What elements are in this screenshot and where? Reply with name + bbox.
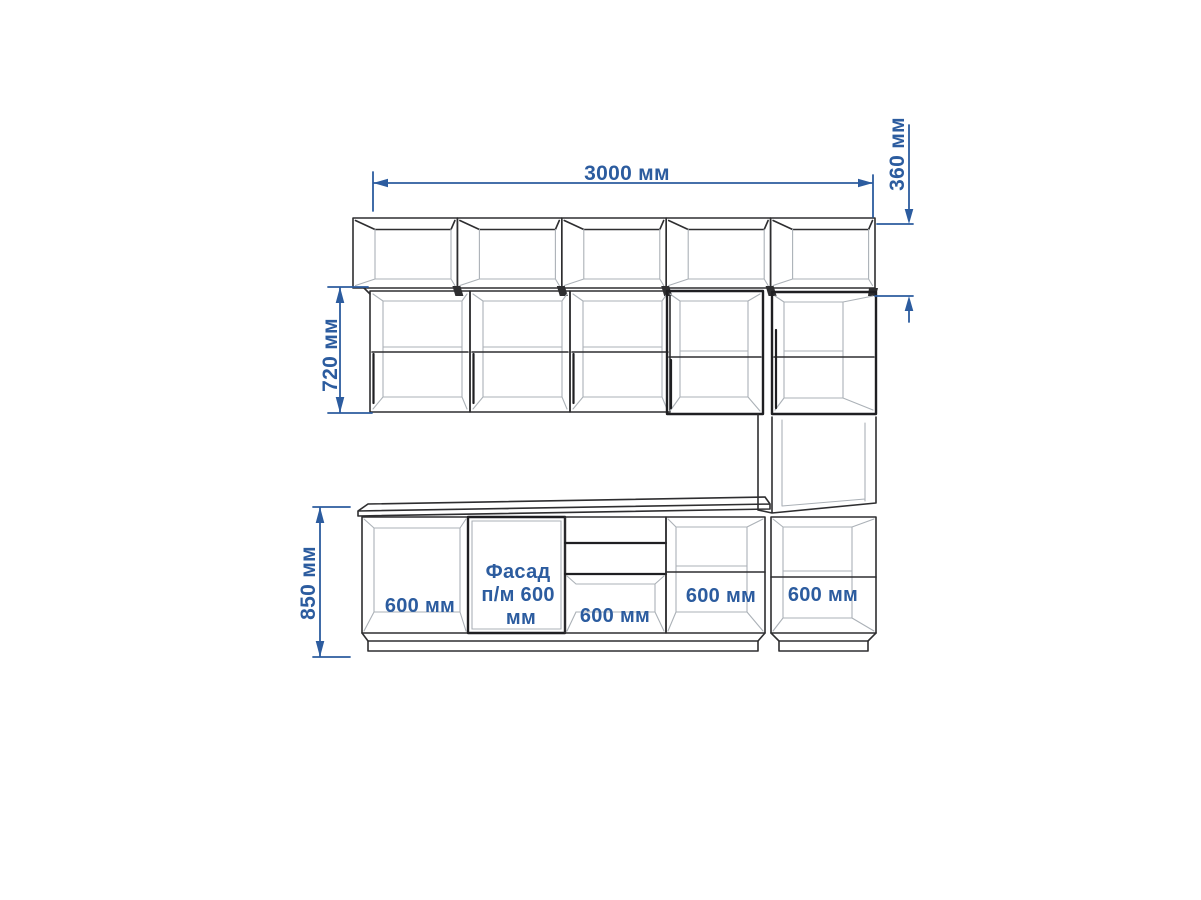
column-upper-cabinet [772,292,876,414]
kitchen-elevation-page: 3000 мм 360 мм 720 мм 850 мм 600 мм Фаса… [0,0,1201,900]
top-shelf-box-5 [771,218,875,288]
top-shelf-box-1 [353,218,457,288]
dim-wall-row-height: 720 мм [319,287,372,413]
column-base-cabinet [771,517,876,633]
dim-top-row-height: 360 мм [875,117,913,322]
wall-top-shelf-row [353,218,878,296]
plinth [362,633,876,651]
tall-cabinet-column [758,292,876,633]
wall-cabinet-4-door [667,291,763,414]
column-open-niche [758,414,876,513]
dim-wall-row-height-label: 720 мм [319,318,342,392]
drawer-cabinet-label: 600 мм [580,605,650,627]
top-shelf-box-2 [457,218,561,288]
dim-total-width: 3000 мм [373,162,873,217]
base-cabinet-4-label: 600 мм [686,585,756,607]
dim-base-row-height-label: 850 мм [297,546,320,620]
base-cabinet-1-label: 600 мм [385,595,455,617]
wall-cabinet-3 [570,291,670,412]
sink-facade-label: Фасад п/м 600 мм [481,561,560,629]
dim-total-width-label: 3000 мм [584,162,670,185]
top-shelf-box-3 [562,218,666,288]
dim-top-row-height-label: 360 мм [886,117,909,191]
dim-base-row-height: 850 мм [297,507,350,657]
kitchen-elevation-drawing: 3000 мм 360 мм 720 мм 850 мм 600 мм Фаса… [0,0,1201,900]
column-base-cabinet-label: 600 мм [788,584,858,606]
wall-cabinet-row [370,291,763,414]
top-shelf-box-4 [666,218,770,288]
wall-cabinet-2 [470,291,570,412]
countertop [358,497,770,516]
wall-cabinet-1 [370,291,470,412]
base-cabinet-4 [666,517,765,633]
